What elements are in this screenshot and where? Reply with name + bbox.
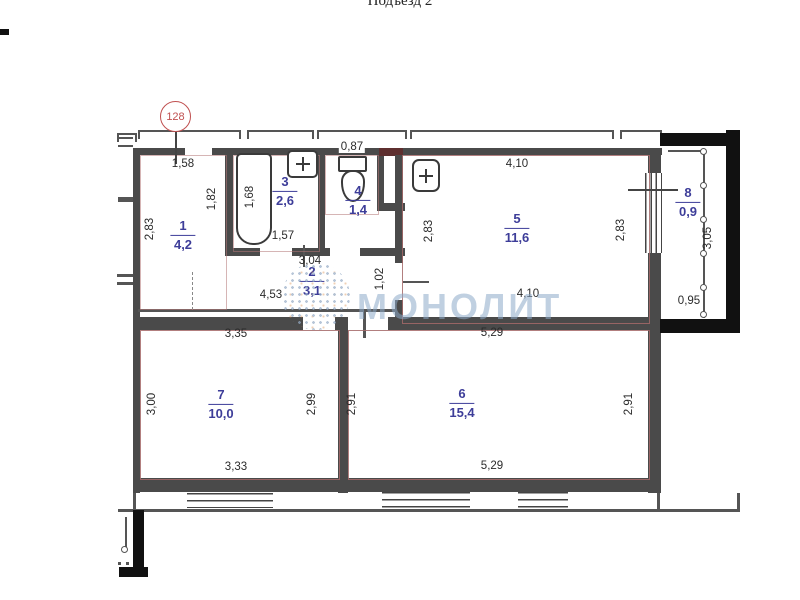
edge-mark [0,29,9,35]
room-label-6: 615,4 [449,386,474,420]
balcony-railing-icon [668,150,704,152]
dimension-label: 2,83 [144,218,156,240]
room-label-4: 41,4 [345,183,370,217]
corridor-wall [247,130,314,139]
door-leaf [403,281,429,283]
window-icon [645,173,662,253]
dimension-label: 2,91 [623,393,635,415]
room-label-8: 80,9 [675,185,700,219]
lower-balcony-wall [119,567,148,577]
dimension-label: 0,87 [339,141,365,153]
room-outline [348,330,650,480]
window-icon [382,492,470,508]
wall [360,248,405,256]
dimension-label: 2,83 [423,220,435,242]
dimension-label: 3,00 [146,393,158,415]
watermark-text: МОНОЛИТ [357,286,562,328]
dimension-label: 5,29 [481,327,503,339]
apartment-number-badge: 128 [160,101,191,132]
dimension-label: 0,95 [678,295,700,307]
kitchen-sink-icon [412,159,440,192]
wall-stub [118,145,133,147]
room-label-3: 32,6 [272,174,297,208]
building-edge [118,509,740,512]
corridor-wall [317,130,407,139]
dimension-label: 5,29 [481,460,503,472]
railing-post [700,148,707,155]
railing-post [700,216,707,223]
wall [395,155,403,263]
page-title: Подъезд 2 [0,0,800,10]
railing-post [700,311,707,318]
dimension-label: 1,58 [172,158,194,170]
corridor-wall [620,130,662,139]
window-icon [187,493,273,508]
lower-railing-icon [125,517,127,547]
corridor-wall [138,130,241,139]
railing-post [700,250,707,257]
railing-post [700,182,707,189]
railing-post [121,546,128,553]
balcony-wall [726,130,740,333]
dimension-label: 1,68 [244,186,256,208]
apartment-number: 128 [166,111,184,123]
wall [377,148,384,210]
wall [648,253,661,493]
dimension-label: 1,57 [272,230,294,242]
wall [225,148,233,255]
balcony-wall [660,133,733,146]
wall [657,493,660,509]
wall [133,478,661,492]
railing-post [700,284,707,291]
wall [737,493,740,509]
watermark-globe-icon [282,263,350,330]
railing-dot [126,562,129,565]
balcony-wall [660,319,740,333]
corridor-wall [410,130,614,139]
wall-stub [118,137,133,139]
wall [133,493,136,509]
dimension-label: 1,82 [206,188,218,210]
wall [225,248,260,256]
lower-balcony-wall [133,510,144,569]
dimension-label: 3,05 [702,227,714,249]
room8-leader-line [628,189,678,191]
dimension-label: 2,91 [346,393,358,415]
dimension-label: 3,35 [225,328,247,340]
wall-stub [117,282,133,285]
wall [133,317,303,330]
dimension-label: 3,33 [225,461,247,473]
opening-marker [192,272,193,310]
floor-plan: Подъезд 2 [0,0,800,600]
wall [133,148,185,155]
wall [318,148,325,248]
room-label-7: 710,0 [208,387,233,421]
dimension-label: 4,10 [506,158,528,170]
dimension-label: 4,53 [260,289,282,301]
railing-dot [118,562,121,565]
wall-stub [118,197,133,202]
dimension-label: 2,99 [306,393,318,415]
wall [402,148,662,155]
room-label-5: 511,6 [504,211,529,245]
wall [648,148,661,173]
dimension-label: 2,83 [615,219,627,241]
window-icon [518,492,568,508]
wall-stub [117,274,133,277]
room-label-1: 14,2 [170,218,195,252]
